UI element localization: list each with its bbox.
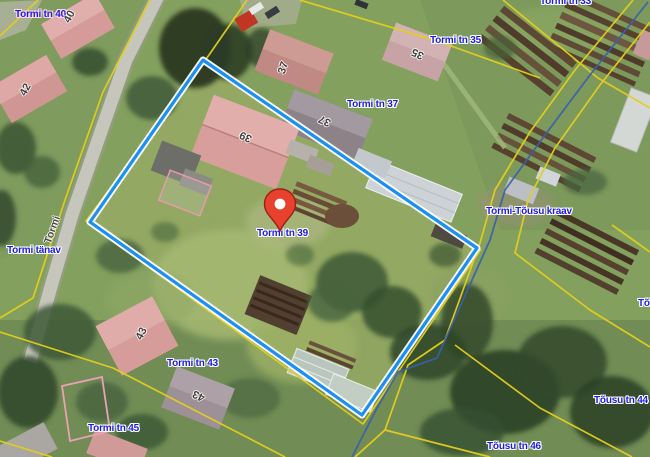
aerial-map-canvas[interactable] [0,0,650,457]
aerial-map-viewport[interactable]: Tormi tn 40Tormi tn 33Tormi tn 35Tormi t… [0,0,650,457]
location-pin-icon[interactable] [263,188,297,232]
